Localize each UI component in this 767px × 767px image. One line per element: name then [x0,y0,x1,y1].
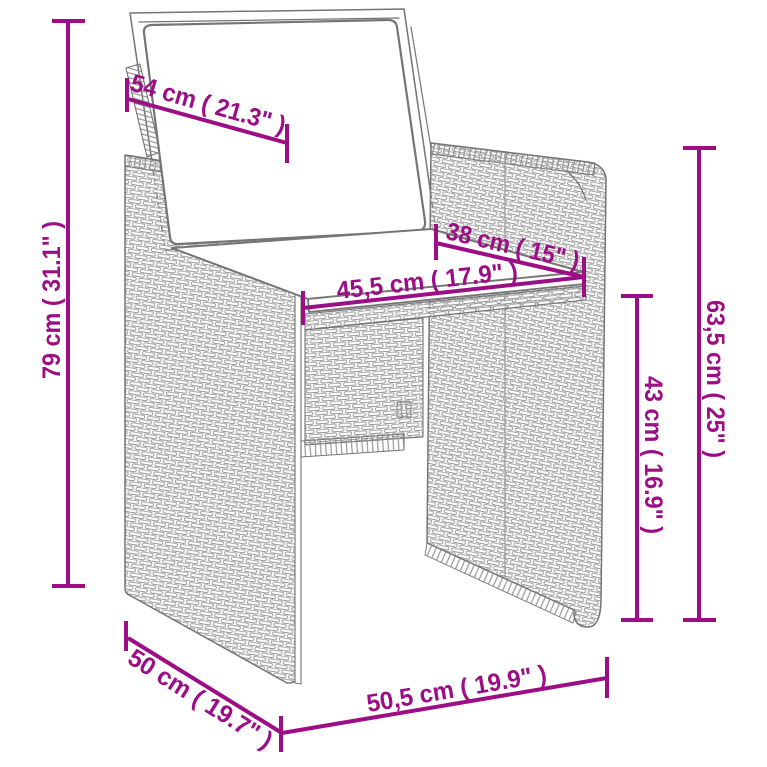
product-dimension-diagram: 54 cm ( 21.3" ) 79 cm ( 31.1" ) 38 cm ( … [0,0,767,767]
dimension-label-armrest-height: 63,5 cm ( 25" ) [701,300,729,458]
dimension-label-base-width: 50,5 cm ( 19.9" ) [365,660,549,718]
diagram-canvas: 54 cm ( 21.3" ) 79 cm ( 31.1" ) 38 cm ( … [0,0,767,767]
right-side-panel [427,143,606,627]
under-seat-apron [305,318,423,445]
dimension-label-total-height: 79 cm ( 31.1" ) [38,221,66,379]
apron-joint-detail [397,402,411,417]
back-cushion [144,20,425,244]
dimension-label-seat-height: 43 cm ( 16.9" ) [639,376,667,534]
